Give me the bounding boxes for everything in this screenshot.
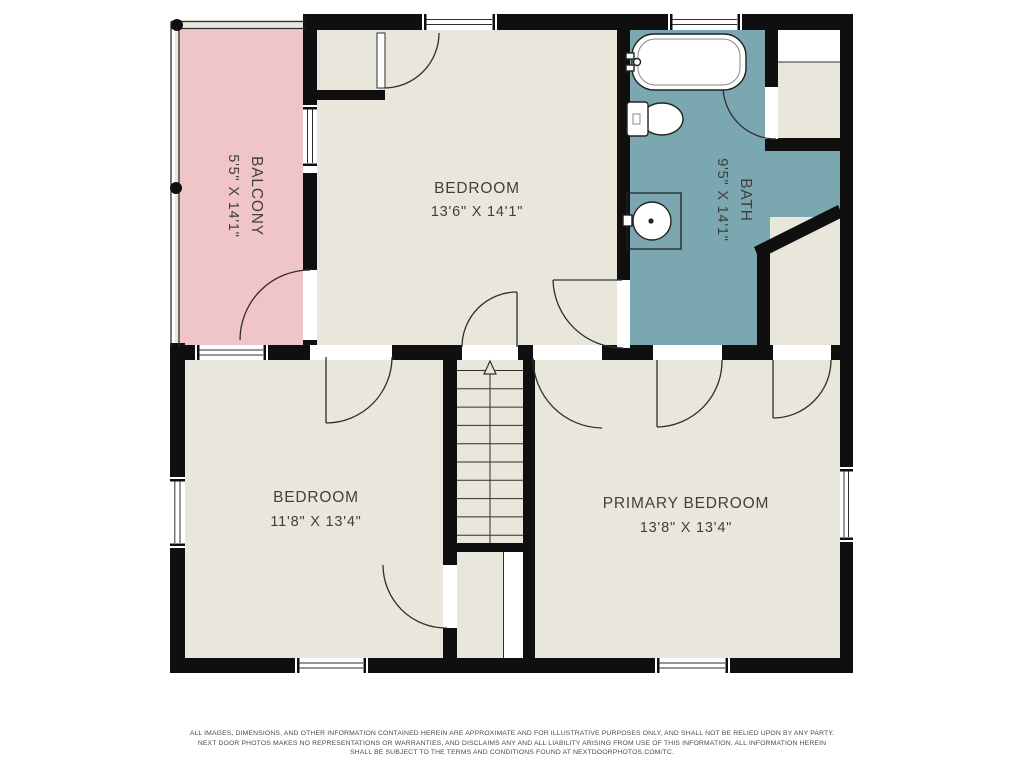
window-balcony-bedroom	[303, 105, 317, 173]
wall-closet-bottom	[303, 90, 385, 100]
wall-right	[840, 14, 853, 673]
wall-bottom	[170, 658, 853, 673]
bathtub-icon	[626, 34, 746, 90]
window-balcony-bedroom2	[195, 345, 268, 360]
window-top-bath	[668, 14, 742, 30]
wall-nook-left	[757, 248, 770, 360]
top-right-closet-void	[778, 30, 840, 62]
primary-bedroom-dimensions: 13'8" X 13'4"	[640, 520, 732, 536]
wall-stair-right	[523, 358, 535, 660]
wall-tr-closet-bottom	[765, 138, 843, 151]
room-balcony-floor	[179, 28, 310, 352]
window-bottom-primary	[655, 658, 730, 673]
wall-top	[303, 14, 853, 30]
disclaimer-line: ALL IMAGES, DIMENSIONS, AND OTHER INFORM…	[0, 729, 1024, 739]
wall-understair-top	[443, 543, 535, 552]
bath-dimensions: 9'5" X 14'1"	[714, 158, 730, 241]
disclaimer-line: NEXT DOOR PHOTOS MAKES NO REPRESENTATION…	[0, 739, 1024, 749]
bath-label: BATH	[737, 178, 754, 221]
bedroom2-dimensions: 11'8" X 13'4"	[270, 514, 361, 530]
balcony-label: BALCONY	[248, 156, 265, 236]
understair-void	[504, 552, 523, 658]
disclaimer-line: SHALL BE SUBJECT TO THE TERMS AND CONDIT…	[0, 748, 1024, 758]
railing-post	[170, 182, 182, 194]
bedroom2-label: BEDROOM	[273, 489, 359, 506]
railing-post	[171, 19, 183, 31]
primary-bedroom-label: PRIMARY BEDROOM	[603, 495, 769, 512]
bedroom-label: BEDROOM	[434, 180, 520, 197]
window-bottom-bedroom2	[295, 658, 368, 673]
disclaimer: ALL IMAGES, DIMENSIONS, AND OTHER INFORM…	[0, 729, 1024, 758]
window-left-bedroom2	[170, 477, 185, 548]
bedroom-dimensions: 13'6" X 14'1"	[431, 204, 523, 220]
balcony-dimensions: 5'5" X 14'1"	[225, 154, 241, 237]
room-floors	[175, 20, 845, 665]
room-bath-extension-floor	[765, 145, 843, 217]
floor-plan-canvas: BEDROOM 13'6" X 14'1" BALCONY 5'5" X 14'…	[0, 0, 1024, 768]
toilet-icon	[627, 102, 683, 136]
floor-plan-page: BEDROOM 13'6" X 14'1" BALCONY 5'5" X 14'…	[0, 0, 1024, 768]
window-top-bedroom	[422, 14, 497, 30]
window-right-primary	[840, 467, 853, 542]
